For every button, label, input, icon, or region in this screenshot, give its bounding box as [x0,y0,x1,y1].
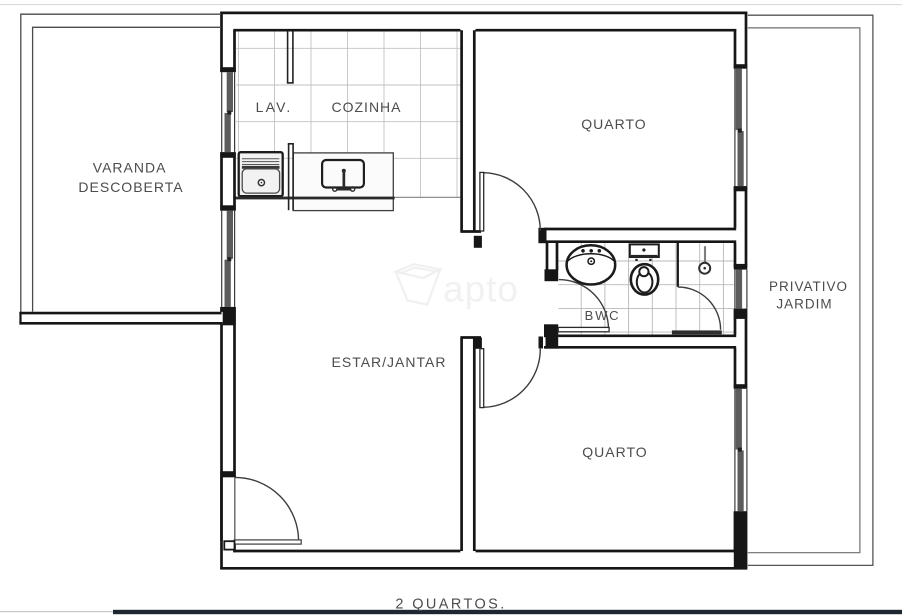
svg-text:DESCOBERTA: DESCOBERTA [78,179,183,195]
svg-text:ESTAR/JANTAR: ESTAR/JANTAR [332,354,447,370]
svg-text:VARANDA: VARANDA [93,160,167,176]
svg-text:PRIVATIVO: PRIVATIVO [769,279,848,294]
svg-text:QUARTO: QUARTO [581,116,646,132]
svg-text:JARDIM: JARDIM [776,297,832,312]
svg-text:COZINHA: COZINHA [332,99,402,115]
svg-text:QUARTO: QUARTO [582,444,647,460]
svg-text:apto: apto [443,269,519,310]
svg-text:LAV.: LAV. [256,99,293,115]
svg-text:2 QUARTOS.: 2 QUARTOS. [395,597,506,613]
svg-text:BWC: BWC [585,308,621,323]
